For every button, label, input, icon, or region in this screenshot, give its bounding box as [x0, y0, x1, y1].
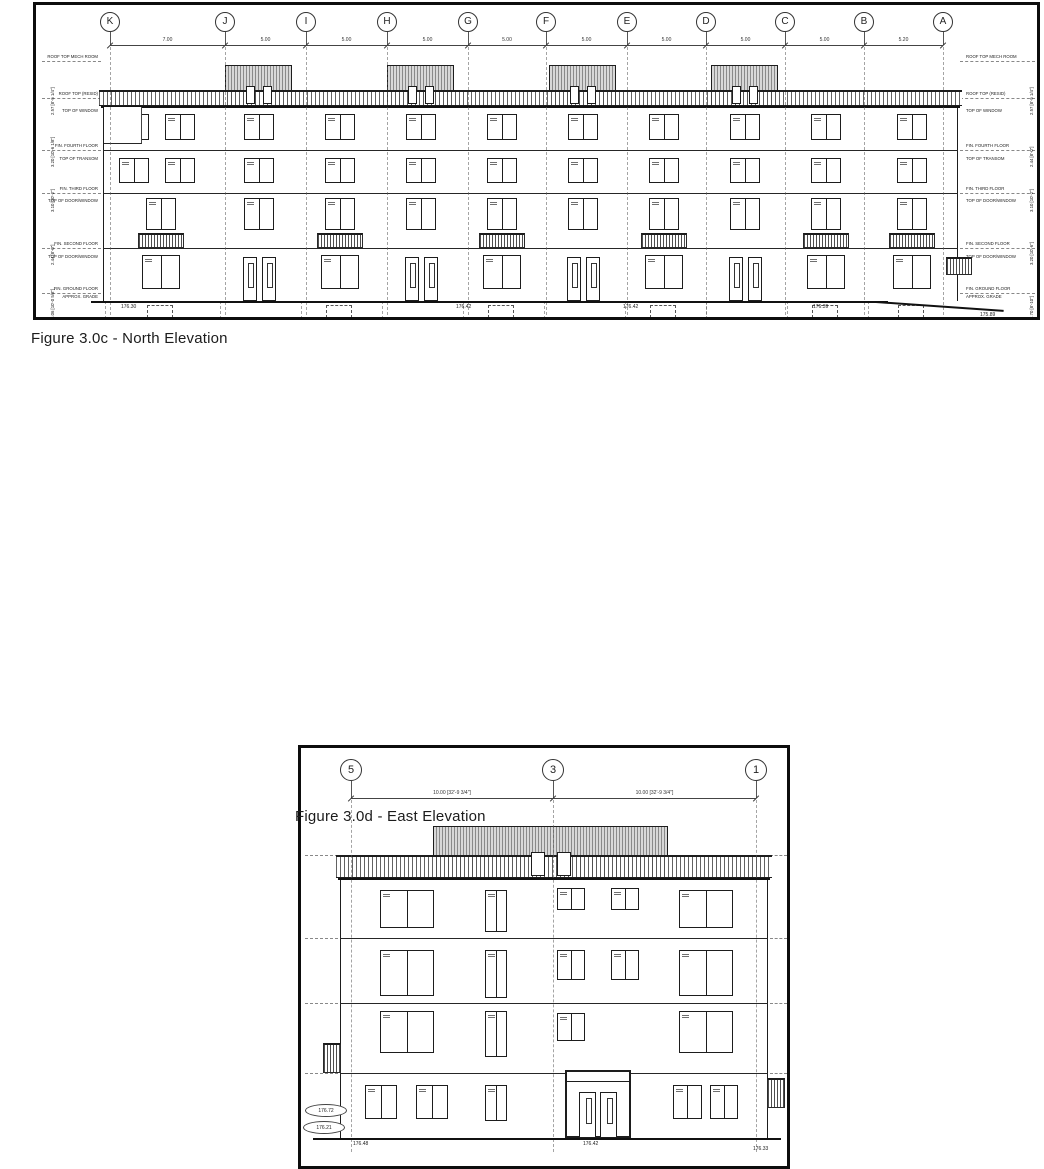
window	[365, 1085, 397, 1119]
level-label: FIN. SECOND FLOOR	[40, 242, 98, 247]
dimension-label: 5.00	[225, 37, 306, 43]
window	[568, 198, 598, 230]
penthouse-door	[425, 86, 434, 104]
grid-line	[387, 47, 388, 315]
window	[416, 1085, 448, 1119]
floor-slab-line	[340, 1003, 768, 1004]
spot-elevation: 176.42	[456, 304, 471, 310]
window	[406, 158, 436, 183]
entry-door	[424, 257, 438, 301]
window	[244, 114, 274, 140]
grid-bubble: E	[617, 12, 637, 32]
spot-elevation-bubble: 176.72	[305, 1104, 347, 1117]
dimension-label: 10.00 [32'-9 3/4"]	[351, 790, 553, 796]
grid-line	[756, 800, 757, 1152]
north-elevation-drawing: KJIHGFEDCBA7.005.005.005.005.005.005.005…	[33, 2, 1040, 320]
document-page: { "figure_north": { "caption": "Figure 3…	[0, 0, 1044, 834]
vertical-dimension: 2.70 [8'-10"]	[1029, 296, 1034, 319]
level-label: FIN. THIRD FLOOR	[966, 187, 1024, 192]
grid-line	[785, 47, 786, 315]
window	[730, 114, 760, 140]
window	[406, 114, 436, 140]
level-line	[770, 1003, 787, 1004]
dimension-label: 10.00 [32'-9 3/4"]	[553, 790, 756, 796]
level-label: FIN. GROUND FLOOR	[966, 287, 1024, 292]
window	[557, 888, 585, 910]
spot-elevation: 176.42	[623, 304, 638, 310]
window	[244, 198, 274, 230]
grid-line	[546, 47, 547, 315]
window	[897, 158, 927, 183]
level-label: TOP OF DOOR/WINDOW	[966, 199, 1024, 204]
window	[811, 158, 841, 183]
window	[321, 255, 359, 289]
floor-slab-line	[340, 938, 768, 939]
entry-door	[405, 257, 419, 301]
grid-bubble: K	[100, 12, 120, 32]
vertical-dimension: 2.57 [8'-5 1/4"]	[50, 87, 55, 115]
window	[649, 198, 679, 230]
window	[679, 950, 733, 996]
level-label: APPROX. GRADE	[40, 295, 98, 300]
level-label: FIN. GROUND FLOOR	[40, 287, 98, 292]
grid-line	[943, 47, 944, 315]
level-label: TOP OF TRANSOM	[966, 157, 1024, 162]
vertical-dimension: 2.44 [8'-0"]	[1029, 146, 1034, 167]
level-label: TOP OF WINDOW	[966, 109, 1024, 114]
window	[325, 198, 355, 230]
below-grade-line	[868, 301, 869, 319]
figure-north-caption: Figure 3.0c - North Elevation	[31, 330, 228, 347]
level-line	[770, 855, 787, 856]
spot-elevation: 175.89	[980, 312, 995, 318]
window	[142, 255, 180, 289]
window	[649, 114, 679, 140]
vertical-dimension: 3.06 [10'-0 5/8"]	[50, 289, 55, 319]
entry-door	[600, 1092, 617, 1138]
dimension-label: 5.00	[546, 37, 627, 43]
entry-door	[243, 257, 257, 301]
floor-slab-line	[340, 1073, 768, 1074]
grid-line	[306, 47, 307, 315]
grid-bubble: F	[536, 12, 556, 32]
window	[893, 255, 931, 289]
entry-door	[262, 257, 276, 301]
grid-bubble: C	[775, 12, 795, 32]
window	[730, 158, 760, 183]
balcony-railing	[323, 1043, 341, 1073]
below-grade-line	[220, 301, 221, 319]
balcony-railing	[889, 233, 935, 248]
basement-window	[147, 305, 173, 318]
window	[611, 950, 639, 980]
window	[807, 255, 845, 289]
grid-line	[864, 47, 865, 315]
window	[679, 1011, 733, 1053]
basement-window	[326, 305, 352, 318]
level-line	[960, 61, 1035, 62]
grid-bubble: G	[458, 12, 478, 32]
level-line	[305, 938, 338, 939]
below-grade-line	[301, 301, 302, 319]
entrance-portal	[565, 1070, 631, 1138]
window	[897, 114, 927, 140]
window	[485, 950, 507, 998]
window	[325, 158, 355, 183]
level-label: FIN. FOURTH FLOOR	[40, 144, 98, 149]
dimension-line	[110, 45, 943, 46]
dimension-line	[351, 798, 756, 799]
grid-line	[225, 47, 226, 315]
grid-line	[553, 800, 554, 1152]
window	[119, 158, 149, 183]
window	[811, 114, 841, 140]
grid-line	[706, 47, 707, 315]
window	[557, 950, 585, 980]
level-label: ROOF TOP MECH ROOM	[40, 55, 98, 60]
window	[485, 890, 507, 932]
window	[568, 114, 598, 140]
level-label: FIN. FOURTH FLOOR	[966, 144, 1024, 149]
floor-slab-line	[103, 150, 958, 151]
window	[487, 198, 517, 230]
window	[380, 950, 434, 996]
level-line	[960, 98, 1035, 99]
window	[649, 158, 679, 183]
floor-slab-line	[103, 248, 958, 249]
level-line	[305, 1073, 338, 1074]
level-label: TOP OF DOOR/WINDOW	[966, 255, 1024, 260]
entry-door	[567, 257, 581, 301]
spot-elevation-bubble: 176.21	[303, 1121, 345, 1134]
window	[645, 255, 683, 289]
grid-bubble: A	[933, 12, 953, 32]
level-label: APPROX. GRADE	[966, 295, 1024, 300]
level-line	[305, 855, 338, 856]
level-line	[960, 193, 1035, 194]
level-label: FIN. SECOND FLOOR	[966, 242, 1024, 247]
grid-line	[468, 47, 469, 315]
dimension-label: 5.20	[864, 37, 943, 43]
dimension-label: 5.00	[468, 37, 546, 43]
roof-line	[101, 106, 960, 108]
figure-east-caption: Figure 3.0d - East Elevation	[295, 808, 486, 825]
grade-line-slope	[876, 301, 1004, 312]
level-label: TOP OF TRANSOM	[40, 157, 98, 162]
dimension-label: 7.00	[110, 37, 225, 43]
below-grade-line	[787, 301, 788, 319]
level-label: ROOF TOP MECH ROOM	[966, 55, 1024, 60]
basement-window	[650, 305, 676, 318]
window	[325, 114, 355, 140]
window	[730, 198, 760, 230]
level-label: TOP OF DOOR/WINDOW	[40, 199, 98, 204]
penthouse-door	[263, 86, 272, 104]
penthouse-door	[408, 86, 417, 104]
below-grade-line	[544, 301, 545, 319]
window	[679, 890, 733, 928]
below-grade-line	[105, 301, 106, 319]
window	[568, 158, 598, 183]
balcony-railing	[317, 233, 363, 248]
vertical-dimension: 3.20 [10'-6 1/8"]	[50, 137, 55, 167]
window	[380, 1011, 434, 1053]
grid-bubble: I	[296, 12, 316, 32]
spot-elevation: 176.48	[353, 1141, 368, 1147]
grid-bubble: J	[215, 12, 235, 32]
window	[673, 1085, 702, 1119]
grid-line	[351, 800, 352, 1152]
level-label: ROOF TOP (RESID)	[40, 92, 98, 97]
penthouse-door	[749, 86, 758, 104]
balcony-railing	[641, 233, 687, 248]
balcony-railing	[138, 233, 184, 248]
level-label: ROOF TOP (RESID)	[966, 92, 1024, 97]
grid-line	[627, 47, 628, 315]
penthouse-door	[732, 86, 741, 104]
spot-elevation: 176.30	[121, 304, 136, 310]
below-grade-line	[382, 301, 383, 319]
grid-bubble: D	[696, 12, 716, 32]
window	[811, 198, 841, 230]
dimension-label: 5.00	[306, 37, 387, 43]
window	[487, 114, 517, 140]
window	[487, 158, 517, 183]
window	[483, 255, 521, 289]
grade-line	[313, 1138, 781, 1140]
basement-window	[488, 305, 514, 318]
balcony-railing	[479, 233, 525, 248]
level-line	[960, 248, 1035, 249]
window	[165, 114, 195, 140]
vertical-dimension: 2.44 [8'-0"]	[50, 244, 55, 265]
grid-bubble: H	[377, 12, 397, 32]
entry-door	[729, 257, 743, 301]
window	[897, 198, 927, 230]
floor-slab-line	[103, 193, 958, 194]
vertical-dimension: 2.57 [8'-5 1/4"]	[1029, 87, 1034, 115]
level-label: TOP OF WINDOW	[40, 109, 98, 114]
window	[557, 1013, 585, 1041]
balcony-railing	[767, 1078, 785, 1108]
vertical-dimension: 3.10 [10'-2"]	[1029, 189, 1034, 212]
level-line	[960, 150, 1035, 151]
level-label: FIN. THIRD FLOOR	[40, 187, 98, 192]
dimension-label: 5.00	[785, 37, 864, 43]
window	[611, 888, 639, 910]
vertical-dimension: 3.20 [10'-6"]	[1029, 242, 1034, 265]
level-line	[305, 1003, 338, 1004]
level-label: TOP OF DOOR/WINDOW	[40, 255, 98, 260]
below-grade-line	[706, 301, 707, 319]
window	[710, 1085, 739, 1119]
figure-north-elevation: KJIHGFEDCBA7.005.005.005.005.005.005.005…	[0, 0, 1044, 370]
stair-railing	[946, 257, 972, 275]
window	[380, 890, 434, 928]
window	[244, 158, 274, 183]
level-line	[770, 938, 787, 939]
entry-door	[579, 1092, 596, 1138]
figure-east-elevation: 53110.00 [32'-9 3/4"]10.00 [32'-9 3/4"]1…	[0, 370, 1044, 834]
level-line	[770, 1073, 787, 1074]
vertical-dimension: 3.10 [10'-2"]	[50, 189, 55, 212]
penthouse-door	[557, 852, 571, 876]
spot-elevation: 176.39	[813, 304, 828, 310]
balcony-railing	[803, 233, 849, 248]
grid-bubble: 3	[542, 759, 564, 781]
window	[485, 1085, 507, 1121]
grid-line	[110, 47, 111, 315]
penthouse-door	[587, 86, 596, 104]
penthouse-door	[246, 86, 255, 104]
window	[485, 1011, 507, 1057]
penthouse-door	[570, 86, 579, 104]
roof-railing	[336, 855, 772, 878]
dimension-label: 5.00	[627, 37, 706, 43]
grid-bubble: 1	[745, 759, 767, 781]
entry-door	[586, 257, 600, 301]
spot-elevation: 176.42	[583, 1141, 598, 1147]
window	[406, 198, 436, 230]
grid-bubble: B	[854, 12, 874, 32]
entry-door	[748, 257, 762, 301]
penthouse-door	[531, 852, 545, 876]
grid-bubble: 5	[340, 759, 362, 781]
roof-railing	[99, 90, 962, 106]
roof-line	[338, 878, 770, 880]
grade-line	[91, 301, 888, 303]
level-line	[42, 61, 101, 62]
window	[165, 158, 195, 183]
basement-window	[898, 305, 924, 318]
window	[146, 198, 176, 230]
dimension-label: 5.00	[387, 37, 468, 43]
spot-elevation: 176.33	[753, 1146, 768, 1152]
dimension-label: 5.00	[706, 37, 785, 43]
